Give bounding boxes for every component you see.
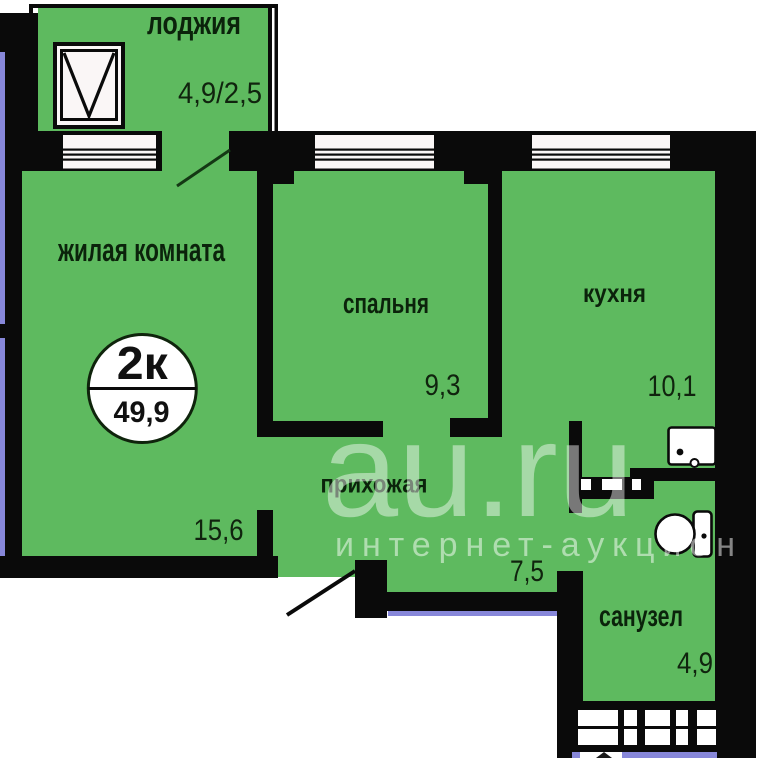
svg-text:au.ru: au.ru [322, 396, 634, 545]
svg-text:кухня: кухня [583, 280, 646, 308]
svg-text:лоджия: лоджия [147, 5, 241, 41]
svg-text:2к: 2к [117, 337, 169, 389]
svg-text:4,9: 4,9 [677, 647, 713, 680]
svg-text:15,6: 15,6 [194, 514, 244, 547]
svg-text:спальня: спальня [343, 288, 429, 320]
svg-text:4,9/2,5: 4,9/2,5 [178, 77, 262, 110]
svg-text:49,9: 49,9 [114, 396, 170, 429]
svg-text:санузел: санузел [599, 600, 683, 633]
svg-text:10,1: 10,1 [648, 370, 697, 403]
svg-text:жилая комната: жилая комната [57, 232, 225, 268]
